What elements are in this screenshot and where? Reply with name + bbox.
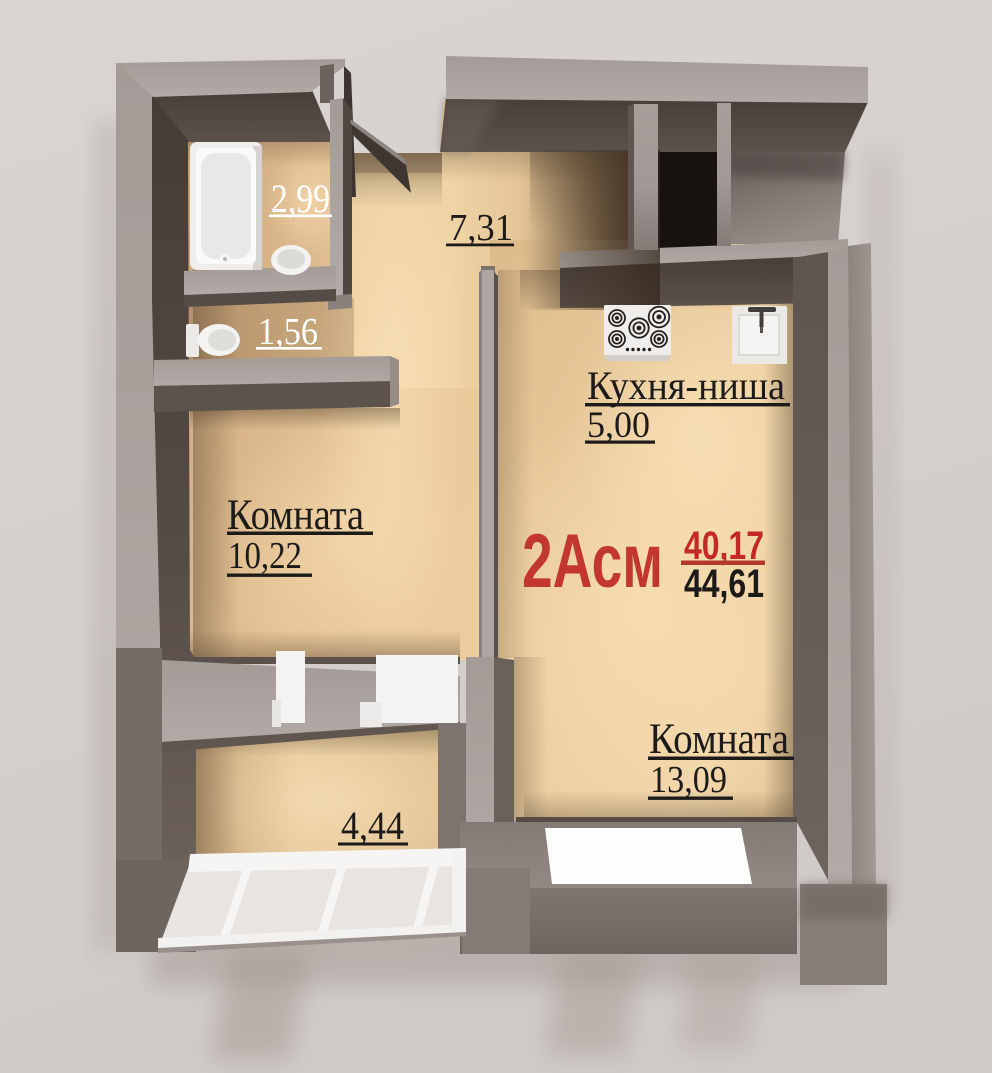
svg-text:4,44: 4,44: [341, 803, 404, 848]
svg-text:10,22: 10,22: [228, 535, 302, 577]
svg-text:7,31: 7,31: [449, 207, 513, 249]
svg-text:2Асм: 2Асм: [522, 519, 663, 604]
svg-text:Кухня-ниша: Кухня-ниша: [587, 363, 785, 408]
svg-text:1,56: 1,56: [258, 311, 318, 353]
svg-text:13,09: 13,09: [650, 759, 727, 801]
svg-text:Комната: Комната: [649, 716, 789, 763]
svg-text:5,00: 5,00: [587, 405, 650, 446]
svg-text:44,61: 44,61: [684, 562, 764, 606]
svg-text:2,99: 2,99: [271, 176, 330, 221]
